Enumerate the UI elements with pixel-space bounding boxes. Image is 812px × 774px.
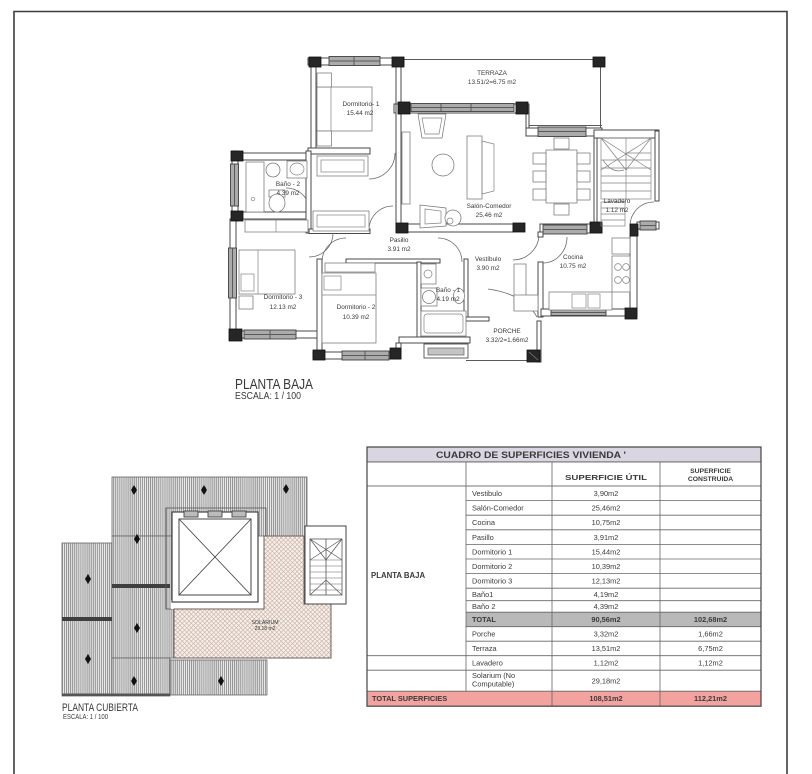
- svg-text:3.32/2=1.66m2: 3.32/2=1.66m2: [486, 337, 529, 344]
- svg-text:4,19m2: 4,19m2: [594, 590, 619, 599]
- svg-text:TERRAZA: TERRAZA: [477, 70, 508, 77]
- svg-text:Salón-Comedor: Salón-Comedor: [472, 504, 524, 513]
- svg-text:3,90m2: 3,90m2: [594, 489, 619, 498]
- svg-text:SUPERFICIE: SUPERFICIE: [690, 468, 731, 475]
- svg-text:3,91m2: 3,91m2: [594, 533, 619, 542]
- svg-text:Porche: Porche: [472, 630, 495, 639]
- svg-text:Salón-Comedor: Salón-Comedor: [467, 203, 513, 210]
- svg-text:15,44m2: 15,44m2: [592, 547, 621, 556]
- svg-text:ESCALA: 1 / 100: ESCALA: 1 / 100: [63, 714, 108, 721]
- svg-text:13,51m2: 13,51m2: [592, 644, 621, 653]
- svg-text:12.13 m2: 12.13 m2: [270, 304, 297, 311]
- svg-text:Lavadero: Lavadero: [472, 659, 503, 668]
- svg-text:Dormitorio 3: Dormitorio 3: [472, 577, 512, 586]
- svg-text:29,18m2: 29,18m2: [592, 676, 621, 685]
- svg-text:CONSTRUIDA: CONSTRUIDA: [688, 476, 733, 483]
- svg-text:Baño 2: Baño 2: [472, 602, 495, 611]
- svg-text:Computable): Computable): [472, 680, 514, 689]
- svg-text:Dormitorio - 2: Dormitorio - 2: [337, 304, 376, 311]
- svg-text:Vestibulo: Vestibulo: [472, 489, 502, 498]
- svg-text:PLANTA CUBIERTA: PLANTA CUBIERTA: [62, 702, 139, 714]
- svg-text:15.44 m2: 15.44 m2: [347, 110, 374, 117]
- svg-text:Lavadero: Lavadero: [604, 198, 631, 205]
- svg-text:3,32m2: 3,32m2: [594, 630, 619, 639]
- svg-text:ESCALA: 1 / 100: ESCALA: 1 / 100: [235, 391, 301, 402]
- svg-text:TOTAL: TOTAL: [472, 615, 496, 624]
- svg-text:112,21m2: 112,21m2: [694, 694, 727, 703]
- svg-text:Dormitorio 1: Dormitorio 1: [472, 547, 512, 556]
- svg-text:SUPERFICIE ÚTIL: SUPERFICIE ÚTIL: [565, 473, 647, 482]
- svg-text:PLANTA BAJA: PLANTA BAJA: [371, 571, 426, 580]
- svg-text:Pasillo: Pasillo: [390, 237, 409, 244]
- svg-text:1.12 m2: 1.12 m2: [605, 207, 629, 214]
- svg-text:1,66m2: 1,66m2: [698, 630, 723, 639]
- svg-text:Vestíbulo: Vestíbulo: [475, 256, 502, 263]
- svg-text:4,39m2: 4,39m2: [594, 602, 619, 611]
- svg-text:Baño - 1: Baño - 1: [436, 287, 461, 294]
- svg-text:Dormitorio- 1: Dormitorio- 1: [343, 101, 380, 108]
- svg-text:Pasillo: Pasillo: [472, 533, 494, 542]
- svg-text:Cocina: Cocina: [563, 254, 583, 261]
- svg-text:102,68m2: 102,68m2: [694, 615, 727, 624]
- svg-text:Baño1: Baño1: [472, 590, 493, 599]
- svg-text:4.19 m2: 4.19 m2: [436, 296, 460, 303]
- svg-text:29.18 m2: 29.18 m2: [255, 626, 276, 632]
- svg-text:Cocina: Cocina: [472, 518, 496, 527]
- svg-text:13.51/2=6.75 m2: 13.51/2=6.75 m2: [468, 79, 517, 86]
- svg-text:6,75m2: 6,75m2: [698, 644, 723, 653]
- svg-text:1,12m2: 1,12m2: [594, 659, 619, 668]
- svg-text:3.90 m2: 3.90 m2: [476, 265, 500, 272]
- svg-text:4.39 m2: 4.39 m2: [276, 190, 300, 197]
- svg-text:TOTAL SUPERFICIES: TOTAL SUPERFICIES: [372, 694, 447, 703]
- svg-text:Baño - 2: Baño - 2: [276, 181, 301, 188]
- svg-text:108,51m2: 108,51m2: [589, 694, 622, 703]
- svg-text:10,75m2: 10,75m2: [592, 518, 621, 527]
- svg-text:PORCHE: PORCHE: [493, 328, 520, 335]
- svg-text:12,13m2: 12,13m2: [592, 577, 621, 586]
- svg-text:90,56m2: 90,56m2: [591, 615, 620, 624]
- svg-text:Dormitorio - 3: Dormitorio - 3: [264, 294, 303, 301]
- svg-text:10,39m2: 10,39m2: [592, 562, 621, 571]
- svg-text:10.39 m2: 10.39 m2: [343, 314, 370, 321]
- svg-text:Terraza: Terraza: [472, 644, 498, 653]
- svg-text:25.46 m2: 25.46 m2: [476, 212, 503, 219]
- svg-text:25,46m2: 25,46m2: [592, 504, 621, 513]
- svg-text:Dormitorio 2: Dormitorio 2: [472, 562, 512, 571]
- svg-text:3.91 m2: 3.91 m2: [387, 246, 411, 253]
- svg-text:CUADRO DE SUPERFICIES VIVIEND: CUADRO DE SUPERFICIES VIVIENDA ': [436, 450, 626, 460]
- svg-text:1,12m2: 1,12m2: [698, 659, 723, 668]
- svg-text:10.75 m2: 10.75 m2: [560, 263, 587, 270]
